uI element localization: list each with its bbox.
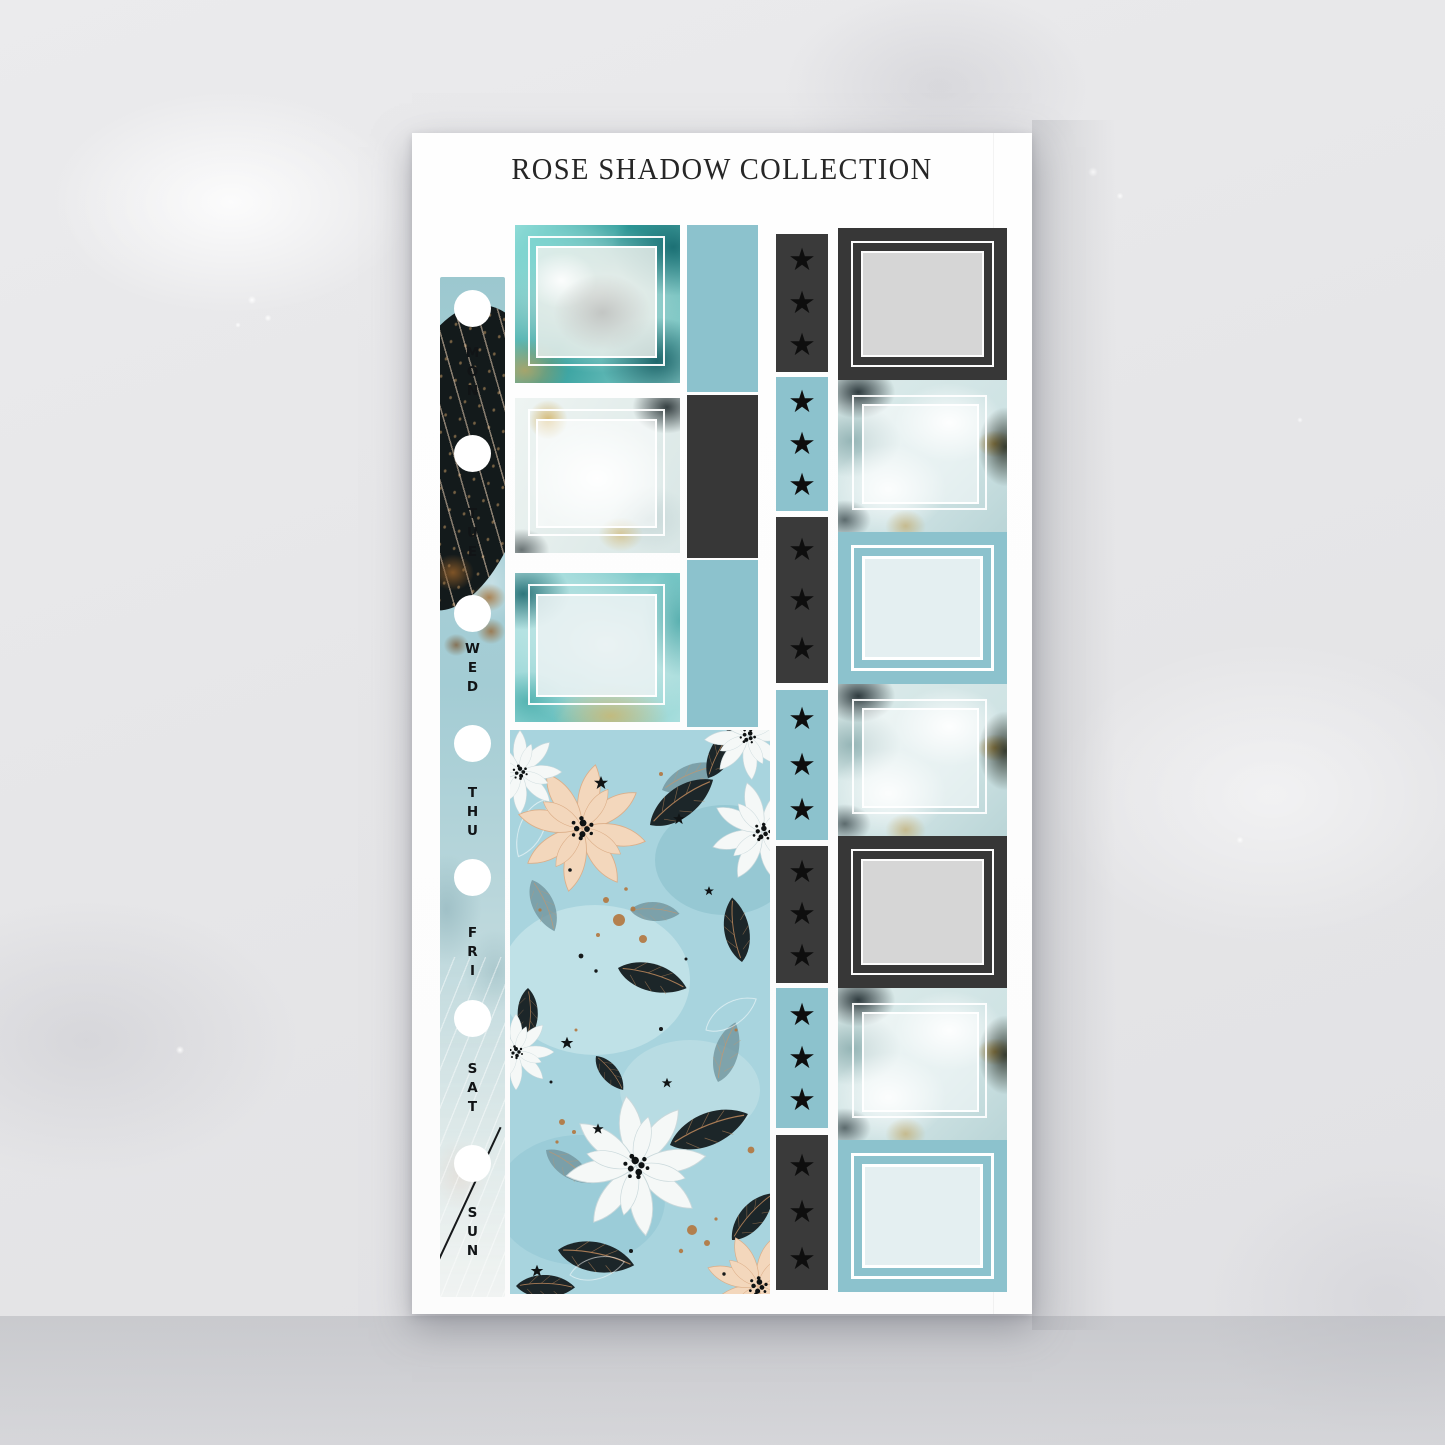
day-label-mon: MON bbox=[440, 338, 505, 408]
square-box-sticker-floral bbox=[838, 380, 1007, 532]
star-icon: ★ bbox=[788, 634, 816, 665]
star-icon: ★ bbox=[788, 857, 816, 888]
hole-punch-circle bbox=[454, 725, 491, 762]
star-icon: ★ bbox=[788, 387, 816, 418]
star-icon: ★ bbox=[788, 1000, 816, 1031]
day-label-sat: SAT bbox=[440, 1054, 505, 1124]
day-label-tue: TUE bbox=[440, 499, 505, 569]
star-icon: ★ bbox=[788, 429, 816, 460]
fullbox-sticker-light-marble bbox=[515, 573, 680, 722]
washi-bar-teal bbox=[687, 225, 758, 392]
hole-punch-circle bbox=[454, 290, 491, 327]
writing-area bbox=[862, 1012, 979, 1112]
date-side-strip-sticker: MON TUE WED THU FRI SAT SUN bbox=[440, 277, 505, 1297]
star-icon: ★ bbox=[788, 1043, 816, 1074]
fullbox-sticker-teal-marble bbox=[515, 225, 680, 383]
square-box-sticker-teal bbox=[838, 532, 1007, 684]
square-box-sticker-charcoal bbox=[838, 228, 1007, 380]
writing-area bbox=[862, 404, 979, 504]
star-icon: ★ bbox=[788, 535, 816, 566]
backdrop-bottom-shadow-band bbox=[0, 1316, 1445, 1445]
backdrop-side-shadow bbox=[1032, 120, 1152, 1330]
star-checklist-sticker: ★ ★ ★ bbox=[776, 988, 828, 1128]
square-box-sticker-charcoal bbox=[838, 836, 1007, 988]
day-label-thu: THU bbox=[440, 778, 505, 848]
writing-area bbox=[861, 251, 984, 357]
writing-area bbox=[862, 1164, 983, 1268]
collection-title: ROSE SHADOW COLLECTION bbox=[437, 151, 1007, 187]
day-label-wed: WED bbox=[440, 634, 505, 704]
star-icon: ★ bbox=[788, 899, 816, 930]
day-label-fri: FRI bbox=[440, 918, 505, 988]
star-icon: ★ bbox=[788, 750, 816, 781]
writing-area bbox=[536, 246, 657, 358]
star-icon: ★ bbox=[788, 288, 816, 319]
writing-area bbox=[536, 594, 657, 697]
sticker-sheet: ROSE SHADOW COLLECTION MON TUE WED THU F… bbox=[412, 133, 1032, 1314]
star-icon: ★ bbox=[788, 1244, 816, 1275]
day-label-sun: SUN bbox=[440, 1198, 505, 1268]
square-box-sticker-floral bbox=[838, 988, 1007, 1140]
star-icon: ★ bbox=[788, 1151, 816, 1182]
writing-area bbox=[861, 859, 984, 965]
star-icon: ★ bbox=[788, 330, 816, 361]
star-checklist-sticker: ★ ★ ★ bbox=[776, 690, 828, 840]
hole-punch-circle bbox=[454, 435, 491, 472]
star-checklist-sticker: ★ ★ ★ bbox=[776, 234, 828, 372]
hole-punch-circle bbox=[454, 1000, 491, 1037]
washi-bar-teal bbox=[687, 560, 758, 727]
product-photo: { "title": "ROSE SHADOW COLLECTION", "sh… bbox=[0, 0, 1445, 1445]
hole-punch-circle bbox=[454, 595, 491, 632]
star-icon: ★ bbox=[788, 941, 816, 972]
star-icon: ★ bbox=[788, 245, 816, 276]
hole-punch-circle bbox=[454, 859, 491, 896]
star-checklist-sticker: ★ ★ ★ bbox=[776, 517, 828, 683]
star-icon: ★ bbox=[788, 1085, 816, 1116]
star-icon: ★ bbox=[788, 704, 816, 735]
star-checklist-sticker: ★ ★ ★ bbox=[776, 377, 828, 511]
star-icon: ★ bbox=[788, 1197, 816, 1228]
washi-bar-charcoal bbox=[687, 395, 758, 558]
writing-area bbox=[536, 419, 657, 528]
floral-pattern-sticker bbox=[510, 730, 770, 1294]
hole-punch-circle bbox=[454, 1145, 491, 1182]
star-checklist-sticker: ★ ★ ★ bbox=[776, 846, 828, 983]
fullbox-sticker-white-floral bbox=[515, 398, 680, 553]
writing-area bbox=[862, 708, 979, 808]
square-box-sticker-teal bbox=[838, 1140, 1007, 1292]
star-icon: ★ bbox=[788, 795, 816, 826]
star-icon: ★ bbox=[788, 585, 816, 616]
star-icon: ★ bbox=[788, 470, 816, 501]
writing-area bbox=[862, 556, 983, 660]
square-box-sticker-floral bbox=[838, 684, 1007, 836]
star-checklist-sticker: ★ ★ ★ bbox=[776, 1135, 828, 1290]
